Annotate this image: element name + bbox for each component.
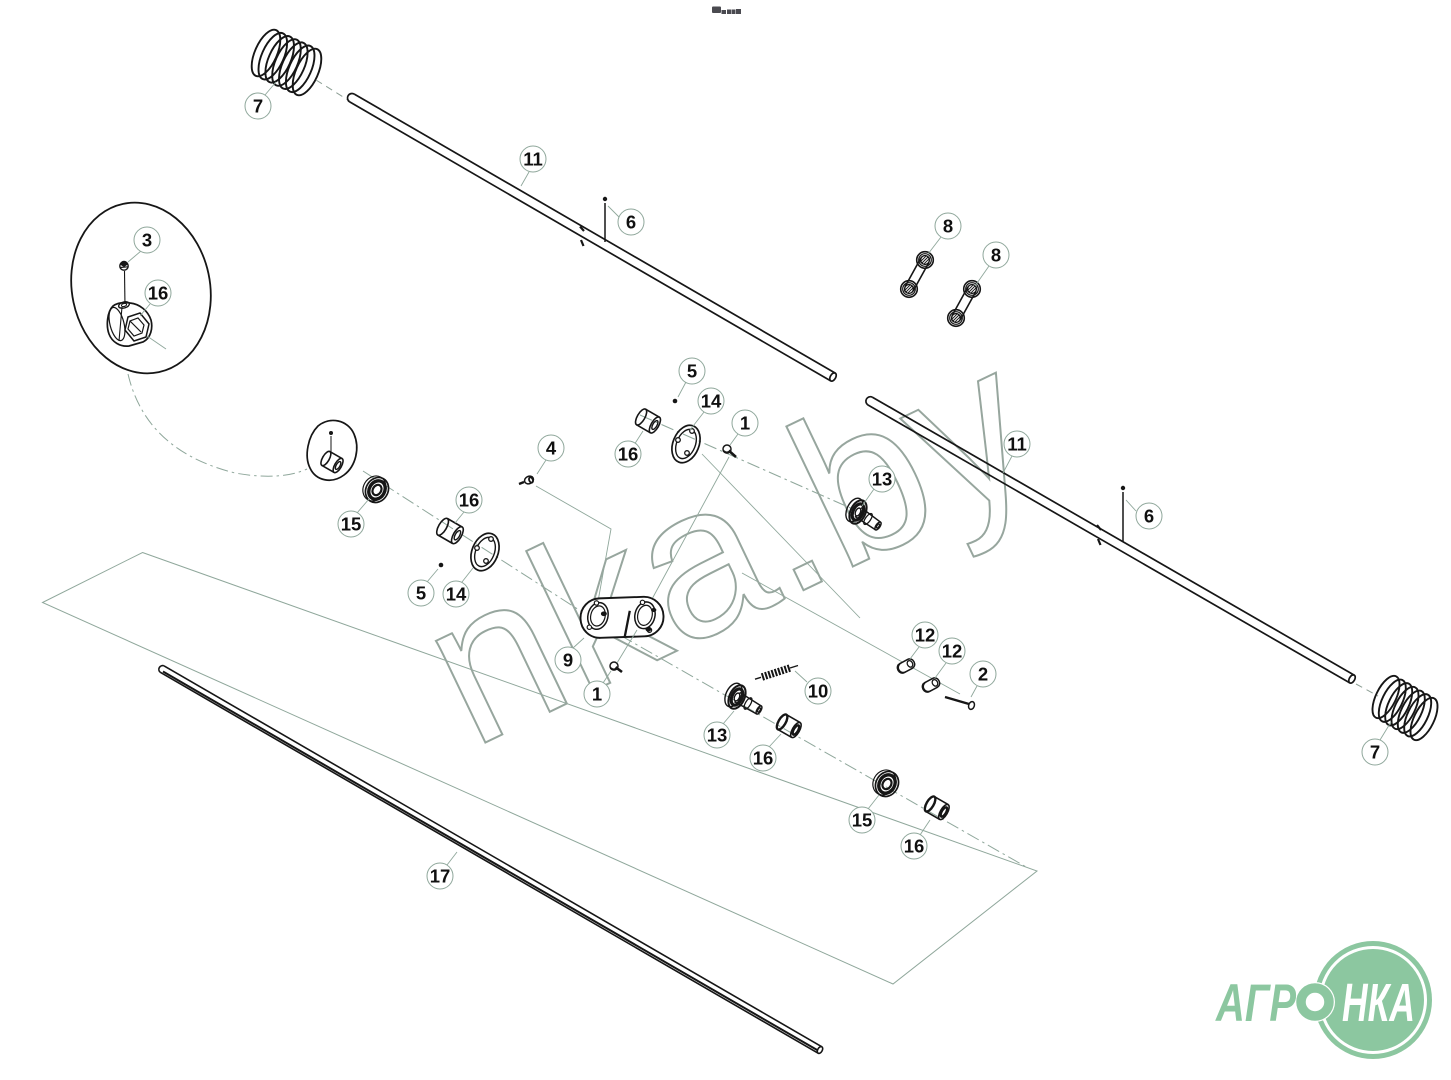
svg-text:12: 12 xyxy=(942,640,963,661)
svg-text:15: 15 xyxy=(341,513,362,534)
svg-text:13: 13 xyxy=(872,468,893,489)
svg-text:7: 7 xyxy=(253,95,263,116)
svg-text:7: 7 xyxy=(1370,741,1380,762)
svg-text:4: 4 xyxy=(546,437,557,458)
svg-text:5: 5 xyxy=(416,582,426,603)
svg-text:6: 6 xyxy=(1144,505,1154,526)
svg-text:16: 16 xyxy=(618,443,639,464)
svg-text:14: 14 xyxy=(701,390,722,411)
svg-text:16: 16 xyxy=(459,489,480,510)
svg-text:2: 2 xyxy=(978,663,988,684)
svg-text:11: 11 xyxy=(523,148,543,169)
svg-text:9: 9 xyxy=(563,649,573,670)
svg-text:15: 15 xyxy=(852,809,873,830)
svg-text:5: 5 xyxy=(687,360,697,381)
svg-text:16: 16 xyxy=(148,282,169,303)
svg-text:6: 6 xyxy=(626,211,636,232)
svg-text:НКА: НКА xyxy=(1342,973,1415,1033)
svg-text:АГР: АГР xyxy=(1214,974,1296,1033)
svg-text:14: 14 xyxy=(446,583,467,604)
svg-text:3: 3 xyxy=(142,229,152,250)
svg-text:16: 16 xyxy=(904,835,925,856)
svg-text:17: 17 xyxy=(430,865,451,886)
svg-text:8: 8 xyxy=(943,215,953,236)
svg-text:11: 11 xyxy=(1007,433,1027,454)
svg-text:16: 16 xyxy=(753,747,774,768)
svg-text:10: 10 xyxy=(808,680,829,701)
svg-text:1: 1 xyxy=(740,412,750,433)
svg-text:12: 12 xyxy=(915,624,936,645)
svg-text:13: 13 xyxy=(707,724,728,745)
svg-text:1: 1 xyxy=(592,683,602,704)
svg-text:8: 8 xyxy=(991,244,1001,265)
